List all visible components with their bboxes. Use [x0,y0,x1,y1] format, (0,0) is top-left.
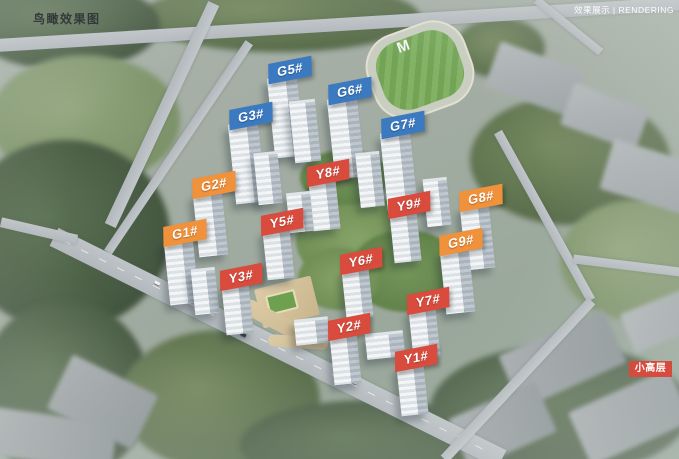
building-marker-G6: G6# [328,77,372,106]
building-tower-Y6 [341,267,373,320]
rendering-caption: 效果展示 | RENDERING [574,4,674,16]
building-marker-G3: G3# [229,102,273,131]
building-marker-G7: G7# [381,111,425,140]
building-tower-Y5 [262,228,294,281]
building-tower-Y2 [329,333,361,386]
building-marker-Y2: Y2# [328,313,370,341]
aerial-rendering: M G5#G6#G3#G7#G2#G1#G8#G9#Y8#Y5#Y9#Y6#Y3… [0,0,679,459]
building-marker-G8: G8# [459,184,503,213]
building-marker-G2: G2# [192,171,236,200]
legend-item-small-high: 小高层 [629,361,672,377]
building-marker-Y7: Y7# [407,287,449,315]
building-tower-Y3 [221,283,253,336]
building-marker-Y8: Y8# [307,159,349,187]
title-caption: 鸟瞰效果图 [33,10,101,27]
building-tower-Y1 [396,364,428,417]
building-marker-G5: G5# [268,56,312,85]
building-tower-Y9 [389,211,421,264]
building-marker-Y6: Y6# [340,247,382,275]
building-tower [294,316,331,345]
building-tower [191,267,220,315]
building-marker-Y3: Y3# [220,263,262,291]
markers-layer: G5#G6#G3#G7#G2#G1#G8#G9#Y8#Y5#Y9#Y6#Y3#Y… [0,0,679,459]
